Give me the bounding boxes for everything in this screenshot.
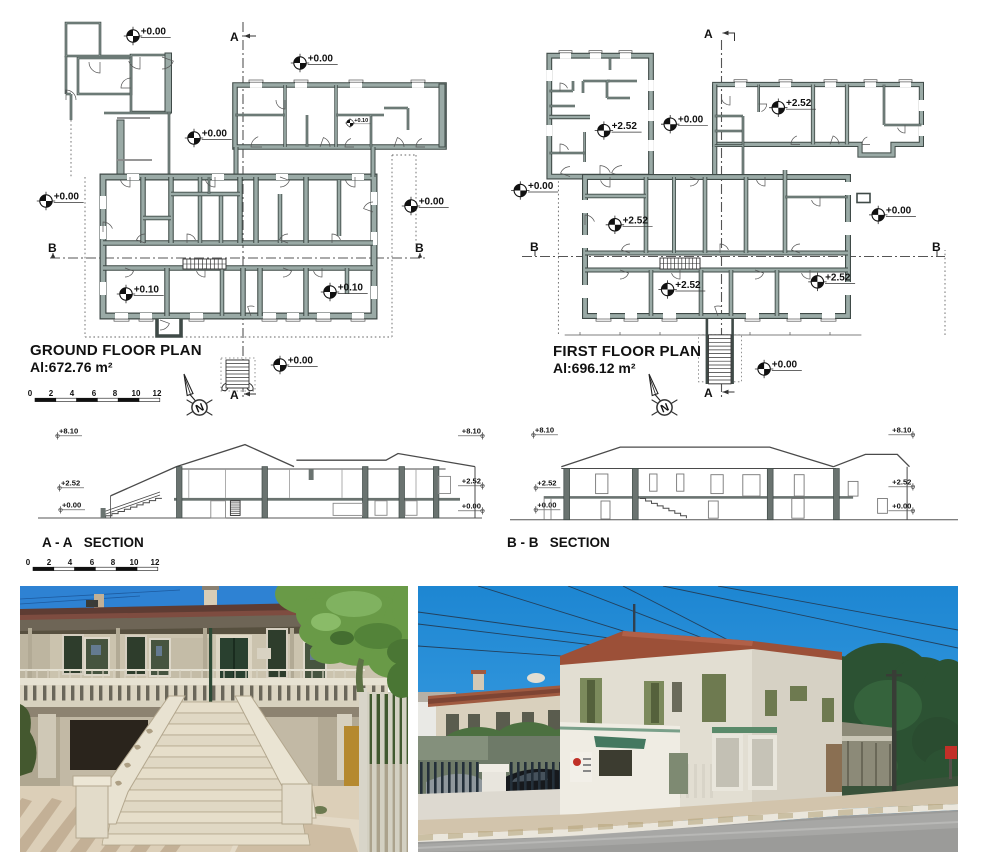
svg-text:+0.00: +0.00 <box>678 115 704 126</box>
svg-text:+0.00: +0.00 <box>462 502 481 511</box>
svg-text:+2.52: +2.52 <box>537 479 556 488</box>
svg-text:A - A SECTION: A - A SECTION <box>42 535 144 550</box>
svg-text:+0.10: +0.10 <box>354 118 368 124</box>
svg-text:6: 6 <box>90 558 95 567</box>
svg-text:0: 0 <box>26 558 31 567</box>
svg-text:+0.00: +0.00 <box>54 192 80 203</box>
svg-text:10: 10 <box>132 389 141 398</box>
svg-text:+2.52: +2.52 <box>892 478 911 487</box>
svg-text:+2.52: +2.52 <box>612 121 638 132</box>
svg-text:B: B <box>48 241 57 255</box>
svg-text:+0.00: +0.00 <box>308 54 334 65</box>
svg-text:+0.00: +0.00 <box>528 181 554 192</box>
svg-text:2: 2 <box>49 389 54 398</box>
svg-text:Al:696.12 m²: Al:696.12 m² <box>553 360 636 376</box>
svg-text:+0.00: +0.00 <box>886 205 912 216</box>
svg-text:4: 4 <box>70 389 75 398</box>
svg-text:+0.00: +0.00 <box>62 501 81 510</box>
svg-text:A: A <box>230 388 239 402</box>
svg-text:2: 2 <box>47 558 52 567</box>
svg-text:6: 6 <box>92 389 97 398</box>
svg-text:+8.10: +8.10 <box>462 427 481 436</box>
svg-text:+0.00: +0.00 <box>537 501 556 510</box>
svg-text:+0.00: +0.00 <box>419 197 445 208</box>
svg-text:+0.00: +0.00 <box>202 129 228 140</box>
svg-text:8: 8 <box>111 558 116 567</box>
svg-text:8: 8 <box>113 389 118 398</box>
svg-text:0: 0 <box>28 389 33 398</box>
svg-text:+0.10: +0.10 <box>338 283 364 294</box>
svg-text:+0.10: +0.10 <box>134 285 160 296</box>
svg-text:+8.10: +8.10 <box>892 426 911 435</box>
svg-text:+2.52: +2.52 <box>462 477 481 486</box>
svg-text:+2.52: +2.52 <box>825 272 851 283</box>
svg-text:GROUND FLOOR PLAN: GROUND FLOOR PLAN <box>30 342 202 359</box>
svg-text:+0.00: +0.00 <box>772 360 798 371</box>
svg-text:+8.10: +8.10 <box>59 427 78 436</box>
svg-text:+2.52: +2.52 <box>61 479 80 488</box>
svg-text:+2.52: +2.52 <box>786 98 812 109</box>
svg-text:FIRST FLOOR PLAN: FIRST FLOOR PLAN <box>553 343 701 360</box>
svg-text:+0.00: +0.00 <box>141 27 167 38</box>
svg-text:+2.52: +2.52 <box>623 215 649 226</box>
svg-text:12: 12 <box>151 558 160 567</box>
svg-text:+8.10: +8.10 <box>535 426 554 435</box>
svg-text:A: A <box>704 27 713 41</box>
svg-text:Al:672.76 m²: Al:672.76 m² <box>30 359 113 375</box>
svg-text:A: A <box>704 386 713 400</box>
svg-text:+2.52: +2.52 <box>675 280 701 291</box>
svg-text:+0.00: +0.00 <box>892 502 911 511</box>
svg-text:12: 12 <box>153 389 162 398</box>
svg-text:B - B SECTION: B - B SECTION <box>507 535 610 550</box>
svg-text:4: 4 <box>68 558 73 567</box>
svg-text:A: A <box>230 30 239 44</box>
svg-text:10: 10 <box>130 558 139 567</box>
svg-text:+0.00: +0.00 <box>288 356 314 367</box>
